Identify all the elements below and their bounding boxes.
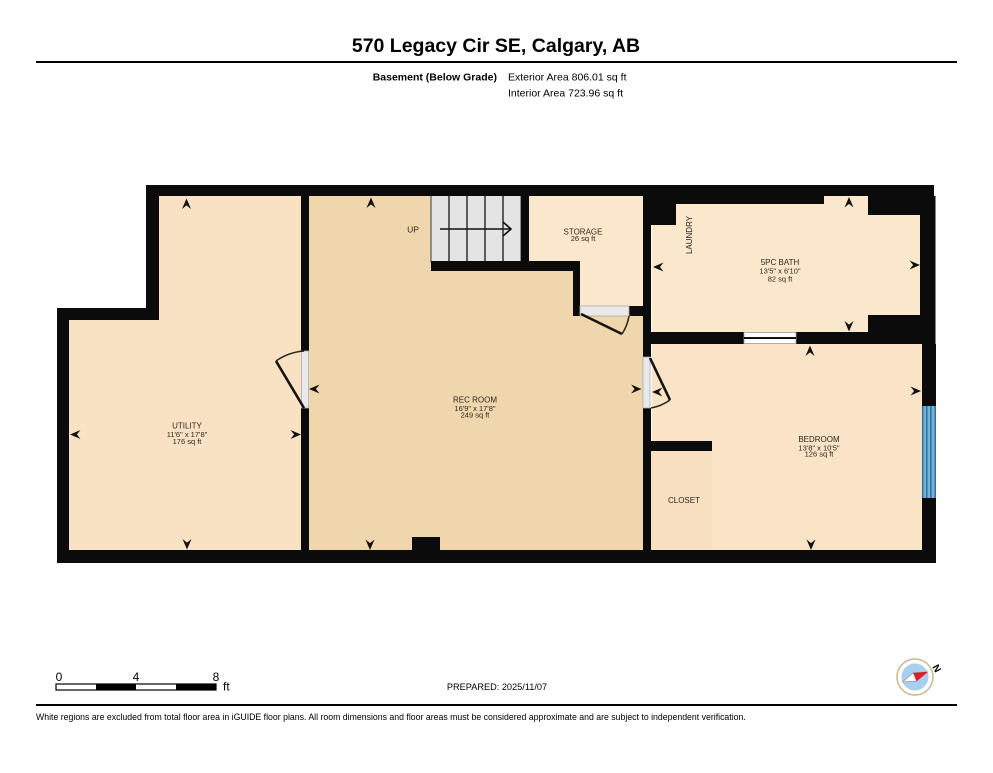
svg-text:176 sq ft: 176 sq ft <box>173 437 203 446</box>
svg-text:Interior Area 723.96 sq ft: Interior Area 723.96 sq ft <box>508 88 623 100</box>
svg-text:126 sq ft: 126 sq ft <box>805 450 835 459</box>
svg-text:4: 4 <box>133 670 140 684</box>
svg-text:White regions are excluded fro: White regions are excluded from total fl… <box>36 712 746 722</box>
svg-text:LAUNDRY: LAUNDRY <box>685 215 694 254</box>
svg-text:82 sq ft: 82 sq ft <box>768 275 794 284</box>
svg-text:Exterior Area 806.01 sq ft: Exterior Area 806.01 sq ft <box>508 72 627 84</box>
svg-text:26 sq ft: 26 sq ft <box>571 234 597 243</box>
svg-text:UP: UP <box>407 225 419 235</box>
svg-text:PREPARED: 2025/11/07: PREPARED: 2025/11/07 <box>447 682 547 692</box>
svg-text:ft: ft <box>223 680 230 694</box>
svg-text:Basement (Below Grade): Basement (Below Grade) <box>373 72 497 84</box>
svg-text:CLOSET: CLOSET <box>668 496 700 505</box>
svg-text:570 Legacy Cir SE, Calgary, AB: 570 Legacy Cir SE, Calgary, AB <box>352 35 640 57</box>
svg-text:249 sq ft: 249 sq ft <box>461 411 491 420</box>
svg-text:0: 0 <box>56 670 63 684</box>
svg-text:8: 8 <box>213 670 220 684</box>
